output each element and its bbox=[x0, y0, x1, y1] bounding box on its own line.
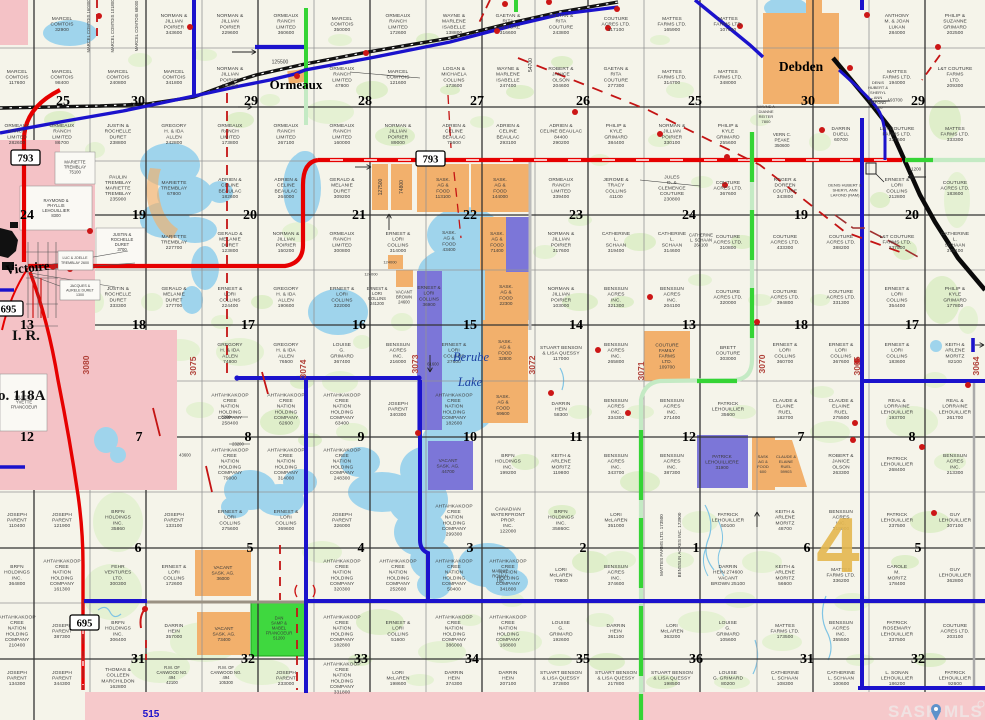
svg-text:8: 8 bbox=[909, 430, 916, 445]
svg-text:31: 31 bbox=[800, 652, 814, 667]
svg-text:MARCELCOMTOIS350000: MARCELCOMTOIS350000 bbox=[331, 16, 354, 33]
svg-text:SASK.AG &FOOD43400: SASK.AG &FOOD43400 bbox=[442, 230, 456, 252]
svg-text:22: 22 bbox=[463, 208, 477, 223]
svg-text:I. R.: I. R. bbox=[12, 328, 40, 344]
svg-text:515: 515 bbox=[143, 709, 160, 720]
svg-text:17: 17 bbox=[905, 318, 919, 333]
svg-text:124000: 124000 bbox=[364, 272, 378, 277]
svg-text:10: 10 bbox=[463, 430, 477, 445]
svg-text:793: 793 bbox=[423, 155, 439, 166]
svg-text:CAROLEM.MORITZ178400: CAROLEM.MORITZ178400 bbox=[887, 564, 907, 587]
svg-text:16: 16 bbox=[352, 318, 366, 333]
svg-text:20: 20 bbox=[905, 208, 919, 223]
svg-text:193700: 193700 bbox=[887, 98, 903, 103]
svg-text:Lake: Lake bbox=[457, 375, 483, 389]
svg-text:MLS: MLS bbox=[944, 702, 983, 720]
svg-text:3073: 3073 bbox=[410, 354, 420, 373]
svg-text:11: 11 bbox=[569, 430, 582, 445]
svg-text:24: 24 bbox=[20, 208, 34, 223]
svg-text:1: 1 bbox=[693, 541, 700, 556]
svg-text:SASK.AG &FOOD32800: SASK.AG &FOOD32800 bbox=[498, 339, 512, 361]
svg-text:19: 19 bbox=[794, 208, 808, 223]
svg-text:LUC & JOELLETREMBLAY 2600: LUC & JOELLETREMBLAY 2600 bbox=[61, 256, 89, 265]
svg-text:3: 3 bbox=[467, 541, 474, 556]
svg-text:793: 793 bbox=[18, 154, 34, 165]
svg-text:26: 26 bbox=[576, 94, 590, 109]
svg-text:8200: 8200 bbox=[221, 415, 231, 420]
svg-text:MARCEL COMTOIS 101800: MARCEL COMTOIS 101800 bbox=[110, 0, 115, 53]
svg-text:4: 4 bbox=[816, 501, 859, 589]
svg-text:28: 28 bbox=[358, 94, 372, 109]
svg-text:11200: 11200 bbox=[909, 167, 922, 172]
svg-text:25: 25 bbox=[56, 94, 70, 109]
svg-text:JOSEPHPARENT326000: JOSEPHPARENT326000 bbox=[332, 512, 352, 529]
svg-text:18: 18 bbox=[794, 318, 808, 333]
svg-text:14: 14 bbox=[569, 318, 583, 333]
svg-text:8: 8 bbox=[245, 430, 252, 445]
svg-text:12: 12 bbox=[20, 430, 34, 445]
svg-text:12: 12 bbox=[682, 430, 696, 445]
svg-text:124000: 124000 bbox=[383, 260, 397, 265]
svg-text:3064: 3064 bbox=[971, 356, 981, 375]
svg-text:36: 36 bbox=[689, 652, 703, 667]
svg-text:23: 23 bbox=[569, 208, 583, 223]
svg-text:15: 15 bbox=[463, 318, 477, 333]
svg-text:35: 35 bbox=[576, 652, 590, 667]
svg-text:Ormeaux: Ormeaux bbox=[270, 77, 323, 92]
svg-text:74800: 74800 bbox=[399, 180, 405, 194]
svg-text:JOSEPHPARENT344300: JOSEPHPARENT344300 bbox=[52, 670, 72, 687]
svg-text:MARCEL COMTOIS 68000: MARCEL COMTOIS 68000 bbox=[134, 0, 139, 51]
svg-text:JOSEPHPARENT133100: JOSEPHPARENT133100 bbox=[164, 512, 184, 529]
svg-text:JOSEPHPARENT387300: JOSEPHPARENT387300 bbox=[52, 623, 72, 640]
svg-text:25: 25 bbox=[688, 94, 702, 109]
svg-text:32: 32 bbox=[911, 652, 925, 667]
svg-text:31: 31 bbox=[131, 652, 145, 667]
svg-text:MARCELCOMTOIS117600: MARCELCOMTOIS117600 bbox=[6, 69, 29, 86]
svg-text:MARCELCOMTOIS240800: MARCELCOMTOIS240800 bbox=[107, 69, 130, 86]
svg-text:27: 27 bbox=[470, 94, 484, 109]
svg-text:30: 30 bbox=[801, 94, 815, 109]
svg-text:24: 24 bbox=[682, 208, 696, 223]
svg-text:DENIS HUBERT &SHERYL ANNLAFOND: DENIS HUBERT &SHERYL ANNLAFOND (RAM) bbox=[828, 183, 862, 198]
svg-text:5: 5 bbox=[915, 541, 922, 556]
svg-text:29: 29 bbox=[911, 94, 925, 109]
svg-text:3065: 3065 bbox=[852, 356, 862, 375]
svg-text:7: 7 bbox=[136, 430, 143, 445]
svg-text:3074: 3074 bbox=[298, 359, 308, 378]
svg-text:JOSEPHPARENT233000: JOSEPHPARENT233000 bbox=[276, 670, 296, 687]
svg-text:JOSEPHPARENT121900: JOSEPHPARENT121900 bbox=[52, 512, 72, 529]
svg-text:3072: 3072 bbox=[527, 355, 537, 374]
svg-text:MARCELCOMTOIS121600: MARCELCOMTOIS121600 bbox=[387, 69, 410, 86]
svg-text:23200: 23200 bbox=[232, 442, 244, 447]
svg-text:34: 34 bbox=[465, 652, 479, 667]
svg-text:JOSEPHPARENT134300: JOSEPHPARENT134300 bbox=[7, 670, 27, 687]
svg-text:7: 7 bbox=[798, 430, 805, 445]
svg-text:MARCEL COMTOIS 160300: MARCEL COMTOIS 160300 bbox=[86, 0, 91, 53]
svg-text:KEITH &ARLENEMORITZ119800: KEITH &ARLENEMORITZ119800 bbox=[551, 453, 571, 476]
svg-text:SASK.AG &FOOD71400: SASK.AG &FOOD71400 bbox=[490, 231, 504, 253]
svg-text:JOSEPHPARENT110400: JOSEPHPARENT110400 bbox=[7, 512, 27, 529]
svg-text:17: 17 bbox=[241, 318, 255, 333]
svg-text:19: 19 bbox=[132, 208, 146, 223]
svg-text:SASK.AG &FOOD22300: SASK.AG &FOOD22300 bbox=[499, 284, 513, 306]
svg-text:BENSSUN ACRES INC. 173900: BENSSUN ACRES INC. 173900 bbox=[677, 512, 682, 577]
svg-text:18: 18 bbox=[132, 318, 146, 333]
svg-text:30: 30 bbox=[131, 94, 145, 109]
svg-text:3070: 3070 bbox=[757, 354, 767, 373]
svg-text:5: 5 bbox=[247, 541, 254, 556]
svg-text:2: 2 bbox=[580, 541, 587, 556]
svg-text:3075: 3075 bbox=[188, 356, 198, 375]
svg-text:3080: 3080 bbox=[81, 355, 91, 374]
svg-text:SASK.AG &FOOD144000: SASK.AG &FOOD144000 bbox=[492, 177, 508, 199]
svg-text:Berube: Berube bbox=[453, 350, 490, 364]
svg-text:6: 6 bbox=[135, 541, 142, 556]
svg-text:695: 695 bbox=[77, 619, 93, 630]
svg-text:Debden: Debden bbox=[779, 59, 824, 74]
svg-text:32: 32 bbox=[241, 652, 255, 667]
svg-text:MATTES FARMS LTD. 173500: MATTES FARMS LTD. 173500 bbox=[659, 514, 664, 576]
svg-text:54700: 54700 bbox=[528, 58, 534, 72]
svg-text:JOSEPHPARENT340300: JOSEPHPARENT340300 bbox=[388, 401, 408, 418]
svg-text:4: 4 bbox=[358, 541, 365, 556]
svg-text:3071: 3071 bbox=[636, 361, 646, 380]
svg-text:o. 118A: o. 118A bbox=[0, 388, 46, 404]
svg-text:VERN C.PEAKE350600: VERN C.PEAKE350600 bbox=[773, 132, 791, 148]
svg-text:29: 29 bbox=[244, 94, 258, 109]
svg-text:127500: 127500 bbox=[378, 178, 384, 195]
svg-text:21: 21 bbox=[352, 208, 366, 223]
svg-text:9: 9 bbox=[358, 430, 365, 445]
svg-text:61600: 61600 bbox=[427, 362, 439, 367]
svg-text:695: 695 bbox=[1, 305, 17, 316]
svg-text:MARCELCOMTOIS341800: MARCELCOMTOIS341800 bbox=[163, 69, 186, 86]
svg-text:SASK.AG &FOOD113100: SASK.AG &FOOD113100 bbox=[435, 177, 451, 199]
svg-text:125500: 125500 bbox=[272, 60, 289, 66]
svg-text:6: 6 bbox=[804, 541, 811, 556]
svg-text:SASK.AG &FOOD69600: SASK.AG &FOOD69600 bbox=[496, 394, 510, 416]
svg-text:20: 20 bbox=[243, 208, 257, 223]
svg-text:33: 33 bbox=[354, 652, 368, 667]
svg-text:13: 13 bbox=[682, 318, 696, 333]
svg-text:43600: 43600 bbox=[179, 453, 191, 458]
